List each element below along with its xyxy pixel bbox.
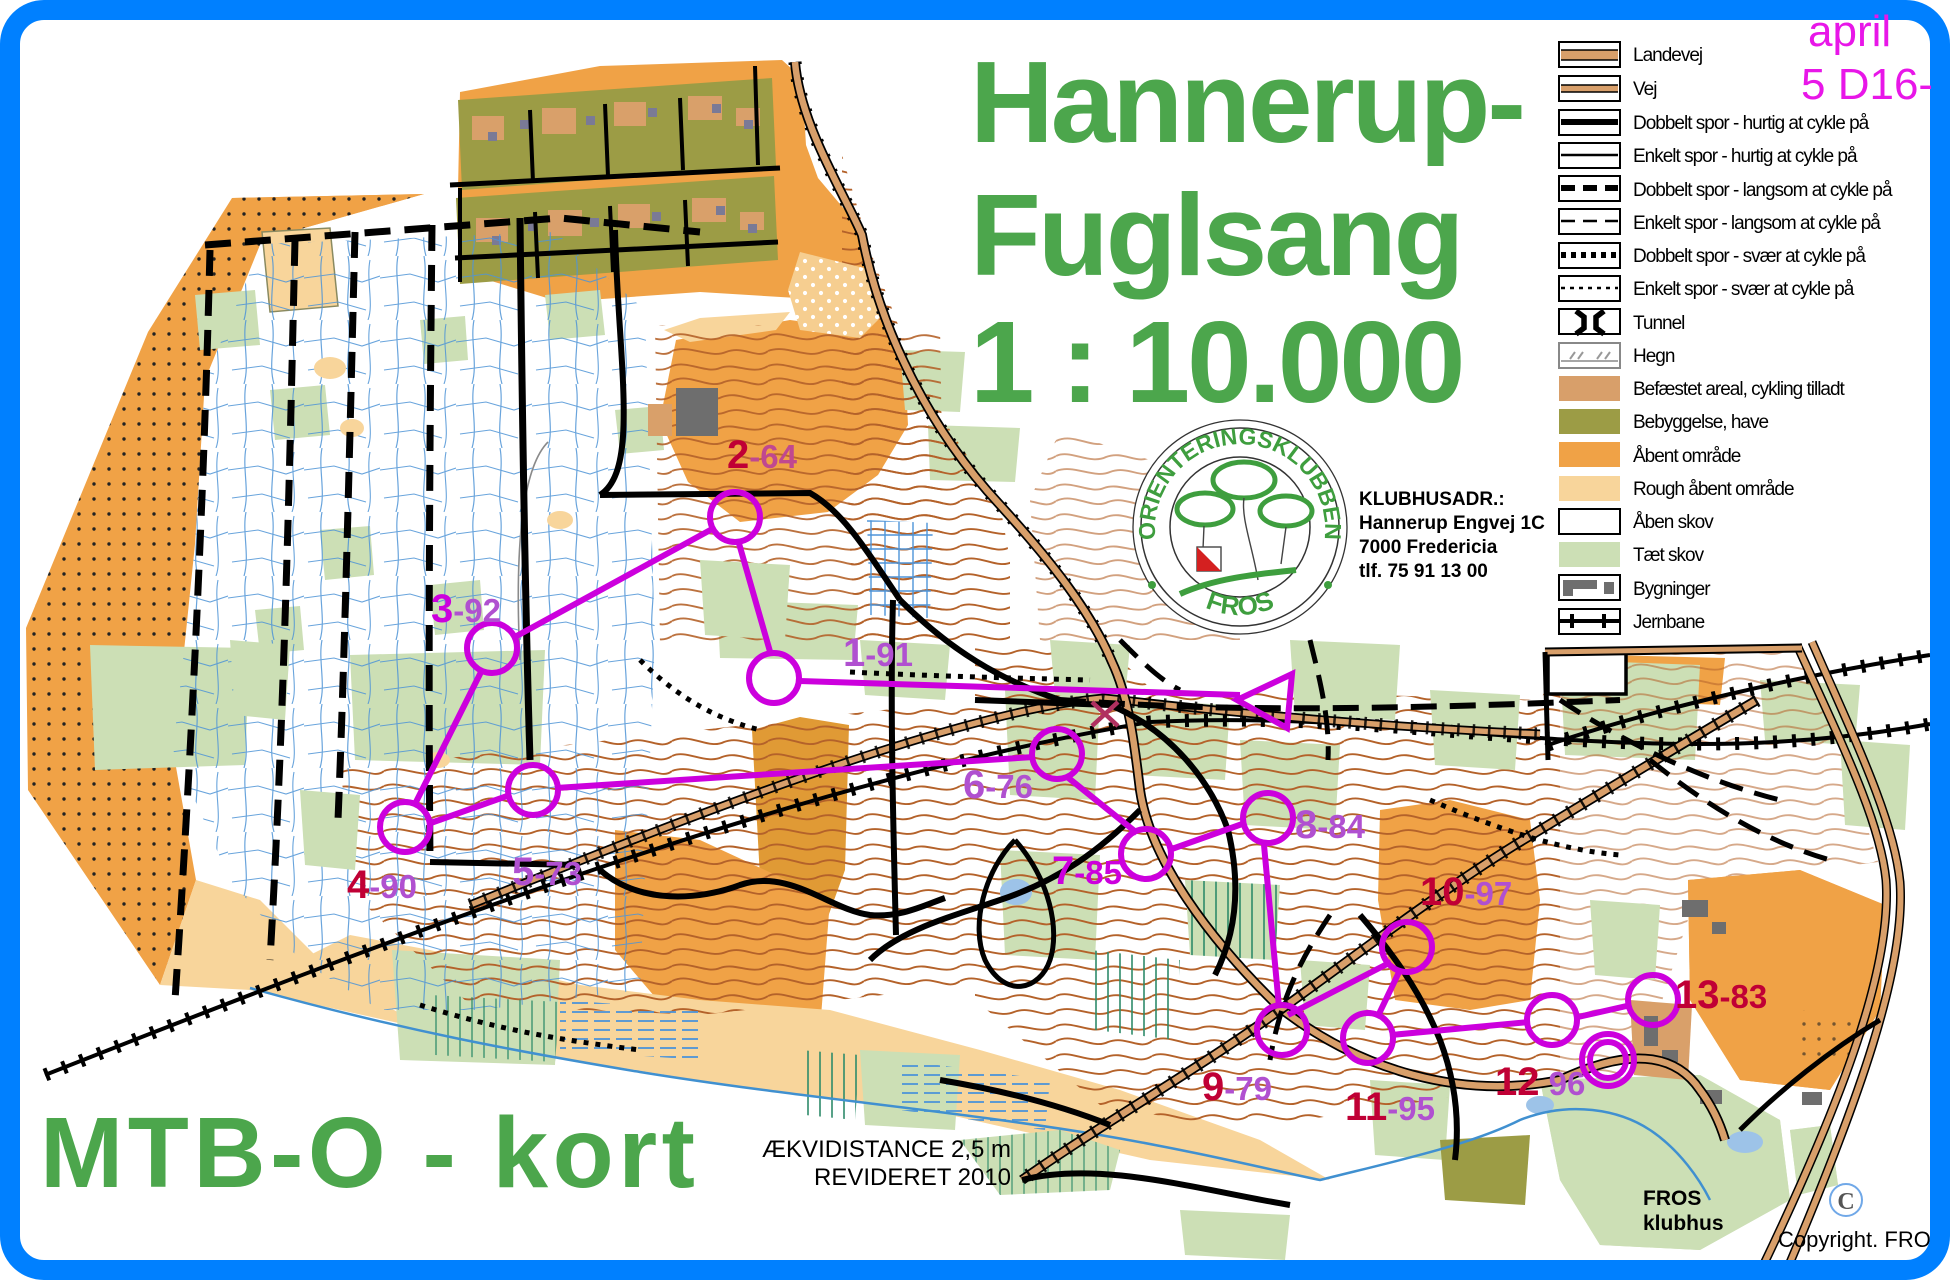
svg-text:Dobbelt spor - svær at cykle p: Dobbelt spor - svær at cykle på [1633, 246, 1866, 267]
svg-text:Enkelt spor - svær at cykle på: Enkelt spor - svær at cykle på [1633, 279, 1855, 300]
svg-text:2-64: 2-64 [727, 433, 798, 477]
svg-text:april: april [1808, 7, 1891, 56]
svg-text:Hannerup-: Hannerup- [970, 37, 1523, 167]
svg-text:12 96: 12 96 [1495, 1060, 1585, 1104]
svg-text:5 D16-: 5 D16- [1801, 60, 1933, 109]
svg-text:9-79: 9-79 [1202, 1065, 1272, 1109]
svg-text:Åben skov: Åben skov [1633, 512, 1714, 533]
svg-text:Vej: Vej [1633, 79, 1656, 100]
svg-text:5-73: 5-73 [512, 850, 582, 894]
svg-text:7-85: 7-85 [1052, 849, 1122, 893]
svg-text:Jernbane: Jernbane [1633, 612, 1705, 633]
svg-text:Enkelt spor - langsom at cykle: Enkelt spor - langsom at cykle på [1633, 213, 1881, 234]
svg-text:1 : 10.000: 1 : 10.000 [970, 297, 1462, 427]
svg-text:REVIDERET 2010: REVIDERET 2010 [814, 1164, 1011, 1191]
svg-text:Landevej: Landevej [1633, 45, 1702, 66]
svg-text:Hegn: Hegn [1633, 346, 1675, 367]
svg-text:Fuglsang: Fuglsang [970, 170, 1462, 300]
svg-text:3-92: 3-92 [431, 587, 501, 631]
svg-text:FROS: FROS [1643, 1187, 1701, 1210]
svg-text:C: C [1837, 1189, 1854, 1215]
svg-text:13-83: 13-83 [1675, 973, 1767, 1017]
svg-text:Åbent område: Åbent område [1633, 446, 1741, 467]
svg-text:4-90: 4-90 [347, 863, 417, 907]
svg-text:Copyright. FROS: Copyright. FROS [1778, 1227, 1946, 1252]
svg-text:KLUBHUSADR.:: KLUBHUSADR.: [1359, 489, 1505, 510]
svg-text:Dobbelt spor - hurtig at cykle: Dobbelt spor - hurtig at cykle på [1633, 113, 1870, 134]
svg-text:Tunnel: Tunnel [1633, 313, 1684, 334]
svg-text:Befæstet areal, cykling tillad: Befæstet areal, cykling tilladt [1633, 379, 1846, 400]
svg-text:11-95: 11-95 [1345, 1085, 1435, 1129]
svg-text:MTB-O - kort: MTB-O - kort [40, 1097, 699, 1209]
svg-text:10-97: 10-97 [1420, 870, 1512, 914]
svg-text:Enkelt spor - hurtig at cykle: Enkelt spor - hurtig at cykle på [1633, 146, 1858, 167]
svg-text:1-91: 1-91 [843, 631, 913, 675]
svg-text:Rough åbent område: Rough åbent område [1633, 479, 1794, 500]
svg-text:Bygninger: Bygninger [1633, 579, 1711, 600]
svg-text:Hannerup Engvej 1C: Hannerup Engvej 1C [1359, 513, 1545, 534]
svg-text:8-84: 8-84 [1295, 803, 1366, 847]
svg-text:klubhus: klubhus [1643, 1212, 1724, 1235]
svg-text:ÆKVIDISTANCE 2,5 m: ÆKVIDISTANCE 2,5 m [762, 1136, 1011, 1163]
svg-text:Bebyggelse, have: Bebyggelse, have [1633, 412, 1768, 433]
svg-text:Dobbelt spor - langsom at cykl: Dobbelt spor - langsom at cykle på [1633, 180, 1893, 201]
svg-text:6-76: 6-76 [963, 763, 1033, 807]
svg-text:7000 Fredericia: 7000 Fredericia [1359, 537, 1498, 558]
svg-text:Tæt skov: Tæt skov [1633, 545, 1705, 566]
svg-text:tlf. 75 91 13 00: tlf. 75 91 13 00 [1359, 561, 1488, 582]
